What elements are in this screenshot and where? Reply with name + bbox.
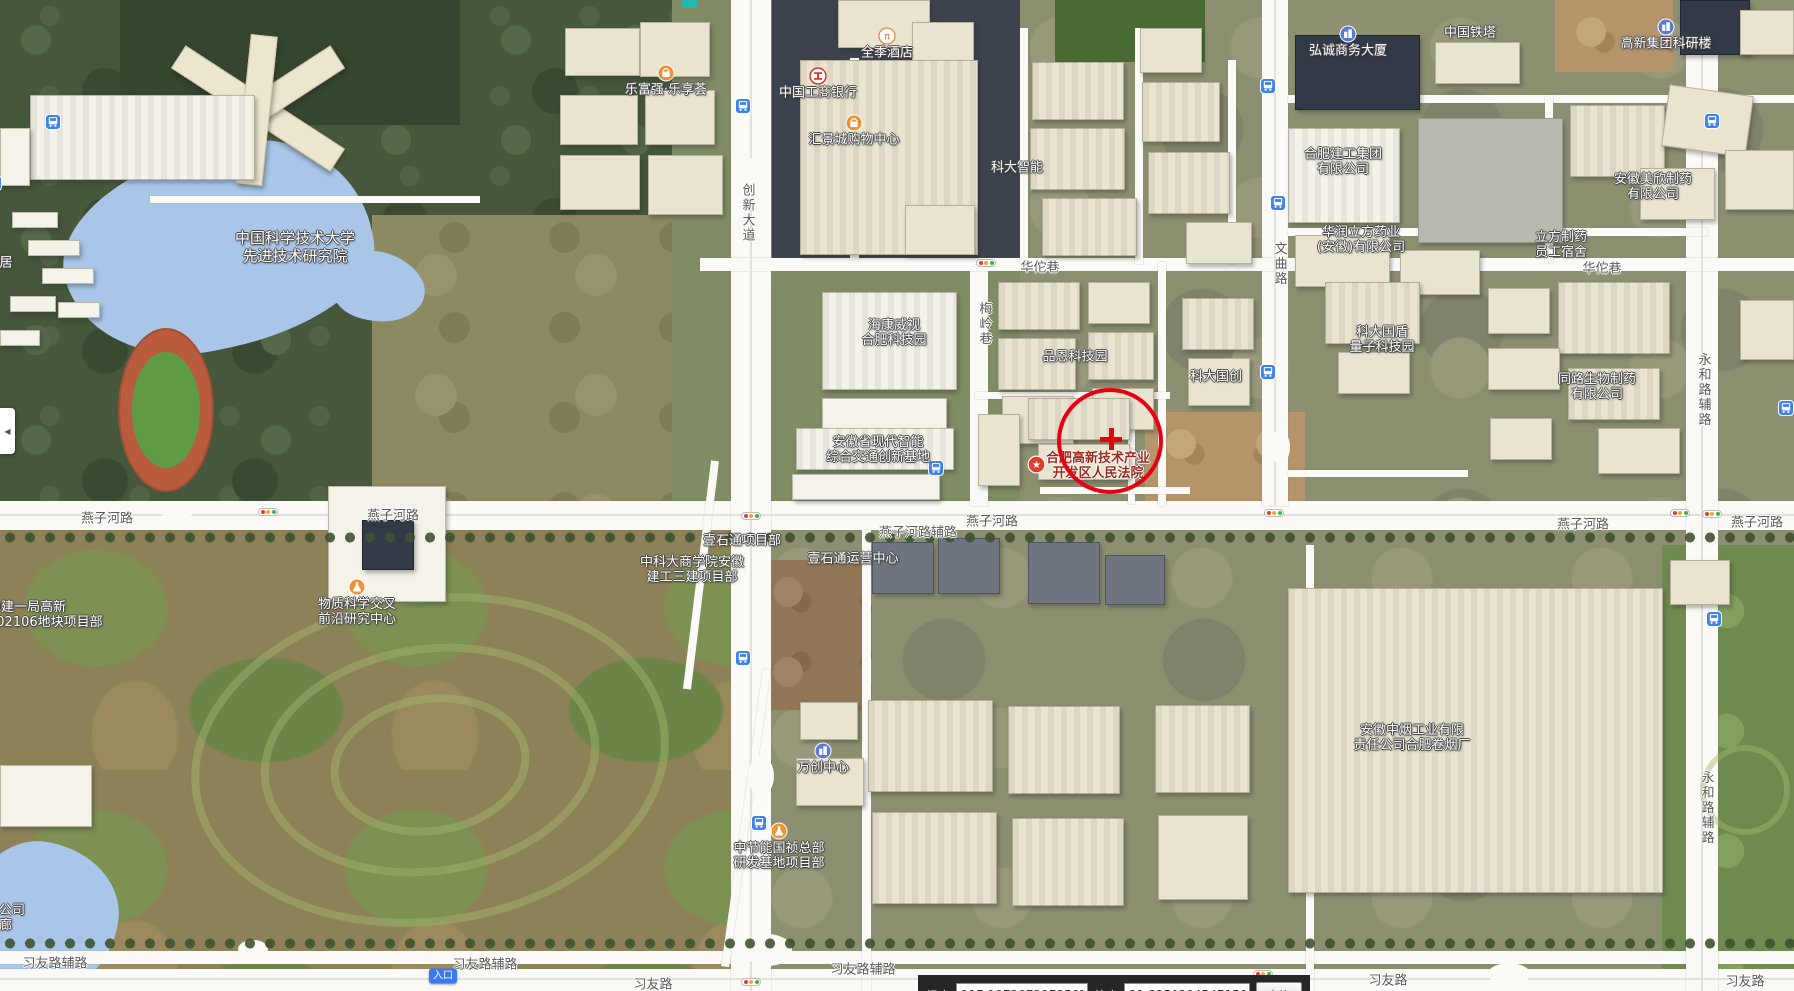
poi-label-line: 弘诚商务大厦 — [1309, 44, 1387, 59]
building — [1418, 118, 1563, 243]
building — [1140, 28, 1202, 73]
poi-label-line: 先进技术研究院 — [235, 247, 355, 265]
road-label: 永和路辅路 — [1697, 771, 1716, 846]
building — [1148, 152, 1230, 214]
poi-label-china-tower[interactable]: 中国铁塔 — [1444, 26, 1496, 41]
science-icon[interactable] — [349, 579, 366, 596]
building — [905, 205, 975, 255]
poi-label-keda-zhineng[interactable]: 科大智能 — [991, 161, 1043, 176]
building — [868, 700, 993, 792]
bus-stop-icon[interactable] — [751, 815, 767, 831]
building — [0, 765, 92, 827]
entrance-badge: 入口 — [429, 969, 457, 984]
poi-label-ustc-business-school-site[interactable]: 中科大商学院安徽建工三建项目部 — [640, 555, 744, 585]
traffic-light-icon — [741, 512, 761, 520]
building — [1008, 706, 1120, 794]
building — [1105, 555, 1165, 605]
building — [1012, 818, 1124, 906]
building — [1488, 288, 1550, 334]
road-label: 习友路 — [1725, 971, 1764, 990]
road-label: 创新大道 — [738, 183, 757, 243]
building — [1186, 222, 1252, 264]
road-segment — [1020, 28, 1028, 264]
bus-stop-icon[interactable] — [0, 175, 2, 191]
bus-stop-icon[interactable] — [1778, 400, 1794, 416]
building — [1558, 282, 1670, 354]
building — [1028, 542, 1100, 604]
poi-label-line: 有限公司 — [1614, 187, 1692, 202]
bus-stop-icon[interactable] — [1260, 78, 1276, 94]
poi-label-line: 高新集团科研楼 — [1620, 37, 1711, 52]
poi-label-yishitong-project[interactable]: 壹石通项目部 — [703, 534, 781, 549]
building — [1182, 298, 1254, 350]
poi-label-lefuqiang-plaza[interactable]: 乐富强·乐享荟 — [625, 83, 707, 98]
bus-stop-icon[interactable] — [1270, 195, 1286, 211]
building — [42, 268, 94, 284]
road-intersection — [748, 756, 774, 796]
poi-label-line: 品恩科技园 — [1042, 350, 1107, 365]
terrain-tan-field — [372, 215, 672, 503]
poi-label-line: 综合交通创新基地 — [826, 450, 930, 465]
building — [1725, 150, 1794, 210]
poi-label-pinen-tech-park[interactable]: 品恩科技园 — [1042, 350, 1107, 365]
building — [58, 302, 100, 318]
building — [800, 702, 858, 740]
poi-label-line: 壹石通项目部 — [703, 534, 781, 549]
poi-label-tobacco-factory[interactable]: 安徽中烟工业有限责任公司合肥卷烟厂 — [1353, 723, 1470, 753]
road-label: 燕子河路 — [367, 505, 419, 524]
building — [1042, 198, 1137, 256]
poi-label-line: (安徽)有限公司 — [1317, 240, 1405, 255]
poi-label-line: 乐富强·乐享荟 — [625, 83, 707, 98]
building — [1030, 128, 1125, 190]
bus-stop-icon[interactable] — [1260, 364, 1276, 380]
road-label: 习友路辅路 — [452, 954, 517, 973]
road-segment — [1158, 262, 1166, 506]
road-segment — [1288, 470, 1468, 477]
building-icon[interactable] — [1658, 18, 1675, 35]
building — [1670, 560, 1730, 605]
poi-label-icbc-bank[interactable]: 中国工商银行 — [779, 86, 857, 101]
road-label: 华佗巷 — [1582, 258, 1621, 277]
poi-label-line: 管廊 — [0, 918, 25, 933]
building — [872, 542, 934, 594]
poi-label-line: 科大国盾 — [1349, 325, 1414, 340]
latitude-input[interactable] — [1124, 983, 1250, 991]
building — [872, 812, 997, 904]
building — [792, 474, 940, 500]
building — [1142, 82, 1220, 142]
latitude-label: 纬度 — [1094, 987, 1118, 991]
poi-label-line: 立方制药 — [1535, 230, 1587, 245]
metro-chip-icon — [682, 0, 697, 8]
poi-label-line: 中建一局高新 — [0, 600, 103, 615]
building — [640, 22, 710, 77]
building — [30, 95, 255, 180]
traffic-light-icon — [1264, 509, 1284, 517]
poi-label-zhongjieneng-hq-site[interactable]: 中节能国祯总部研发基地项目部 — [733, 841, 824, 871]
poi-label-wanchuang-center[interactable]: 万创中心 — [797, 761, 849, 776]
road-label: 习友路辅路 — [830, 959, 895, 978]
building — [1338, 352, 1410, 394]
poi-label-hefei-construction-group[interactable]: 合肥建工集团有限公司 — [1304, 147, 1382, 177]
building — [1155, 705, 1250, 793]
coordinate-statusbar: 经度 纬度 查询 — [918, 975, 1310, 991]
poi-label-line: 建工三建项目部 — [640, 570, 744, 585]
poi-label-line: 中科大商学院安徽 — [640, 555, 744, 570]
bus-stop-icon[interactable] — [735, 650, 751, 666]
road-label: 文曲路 — [1270, 242, 1289, 287]
building — [998, 282, 1080, 330]
science-icon[interactable] — [771, 823, 788, 840]
poi-label-line: 中国工商银行 — [779, 86, 857, 101]
building — [10, 296, 56, 312]
poi-label-matter-science-center[interactable]: 物质科学交叉前沿研究中心 — [318, 597, 396, 627]
shopping-icon[interactable] — [846, 114, 863, 131]
building — [0, 330, 40, 346]
building — [1570, 105, 1665, 177]
sidebar-collapse-button[interactable]: ◀ — [0, 408, 15, 454]
poi-label-line: 中国铁塔 — [1444, 26, 1496, 41]
bank-icon[interactable] — [810, 67, 827, 84]
building — [645, 90, 715, 145]
satellite-map[interactable]: 中国科学技术大学先进技术研究院乐富强·乐享荟中国工商银行全季酒店π汇景城购物中心… — [0, 0, 1794, 991]
building-icon[interactable] — [1340, 25, 1357, 42]
road-intersection — [1488, 963, 1530, 985]
poi-label-line: 合肥建工集团 — [1304, 147, 1382, 162]
poi-label-line: 安徽中烟工业有限 — [1353, 723, 1470, 738]
poi-label-gaoxin-research-building[interactable]: 高新集团科研楼 — [1620, 37, 1711, 52]
poi-label-line: 中节能国祯总部 — [733, 841, 824, 856]
road-label: 永和路辅路 — [1694, 353, 1713, 428]
building — [1598, 428, 1680, 474]
poi-label-keda-guochuang[interactable]: 科大国创 — [1190, 370, 1242, 385]
poi-label-ustc-advanced-institute[interactable]: 中国科学技术大学先进技术研究院 — [235, 229, 355, 265]
svg-text:π: π — [884, 31, 890, 42]
poi-label-huijingcheng-mall[interactable]: 汇景城购物中心 — [808, 133, 899, 148]
road-label: 燕子河路辅路 — [879, 522, 957, 541]
poi-label-line: 全季酒店 — [861, 46, 913, 61]
building — [1488, 348, 1560, 390]
traffic-light-icon — [1702, 510, 1722, 518]
building — [1740, 10, 1794, 55]
building — [912, 22, 974, 64]
court-icon[interactable]: ★ — [1028, 456, 1045, 473]
building — [362, 520, 414, 570]
road-label: 习友路 — [633, 974, 672, 991]
poi-label-line: 海康威视 — [861, 318, 926, 333]
road-label: 华佗巷 — [1020, 257, 1059, 276]
traffic-light-icon — [258, 508, 278, 516]
poi-label-ji-hotel[interactable]: 全季酒店 — [861, 46, 913, 61]
bus-stop-icon[interactable] — [45, 114, 61, 130]
poi-label-line: 科大国创 — [1190, 370, 1242, 385]
poi-label-line: 科大智能 — [991, 161, 1043, 176]
building — [560, 95, 638, 145]
building — [1288, 588, 1663, 893]
poi-label-meixin-pharma[interactable]: 安徽美欣制药有限公司 — [1614, 172, 1692, 202]
poi-label-tonglu-biopharma[interactable]: 同路生物制药有限公司 — [1558, 372, 1636, 402]
target-crosshair — [1109, 428, 1114, 450]
building — [1088, 282, 1150, 324]
poi-label-line: 量子科技园 — [1349, 340, 1414, 355]
poi-label-line: 有限公司 — [1304, 162, 1382, 177]
road-label: 燕子河路 — [81, 508, 133, 527]
road-label: 燕子河路 — [1731, 512, 1783, 531]
poi-label-hongcheng-tower[interactable]: 弘诚商务大厦 — [1309, 44, 1387, 59]
building — [648, 155, 723, 215]
traffic-light-icon — [976, 259, 996, 267]
poi-label-lifang-dormitory[interactable]: 立方制药员工宿舍 — [1535, 230, 1587, 260]
road-label: 习友路辅路 — [22, 953, 87, 972]
hotel-icon[interactable]: π — [879, 27, 896, 44]
poi-label-guodun-quantum-park[interactable]: 科大国盾量子科技园 — [1349, 325, 1414, 355]
building — [12, 212, 58, 228]
poi-label-line: 员工宿舍 — [1535, 245, 1587, 260]
road-label: 习友路 — [1368, 970, 1407, 989]
poi-label-huarun-lifang-pharma[interactable]: 华润立方药业(安徽)有限公司 — [1317, 225, 1405, 255]
poi-label-yishitong-center[interactable]: 壹石通运营中心 — [807, 552, 898, 567]
bus-stop-icon[interactable] — [1706, 611, 1722, 627]
poi-label-hikvision-park[interactable]: 海康威视合肥科技园 — [861, 318, 926, 348]
poi-label-line: 合肥科技园 — [861, 333, 926, 348]
poi-label-zhongjian-site[interactable]: 中建一局高新202106地块项目部 — [0, 600, 103, 630]
poi-label-line: 安徽美欣制药 — [1614, 172, 1692, 187]
poi-label-line: 华润立方药业 — [1317, 225, 1405, 240]
poi-label-pipe-gallery-partial[interactable]: 廊公司管廊 — [0, 903, 25, 933]
poi-label-smart-transport-base[interactable]: 安徽省现代智能综合交通创新基地 — [826, 435, 930, 465]
road-segment — [150, 196, 480, 203]
bus-stop-icon[interactable] — [1704, 113, 1720, 129]
building-icon[interactable] — [815, 742, 832, 759]
poi-label-line: 汇景城购物中心 — [808, 133, 899, 148]
poi-label-line: 责任公司合肥卷烟厂 — [1353, 738, 1470, 753]
building — [978, 414, 1020, 486]
road-label: 梅岭巷 — [975, 302, 994, 347]
road-intersection — [160, 503, 194, 519]
collapse-arrow-icon: ◀ — [4, 427, 10, 436]
building — [1490, 418, 1552, 460]
stadium-field — [132, 352, 200, 468]
building — [560, 155, 640, 210]
svg-text:★: ★ — [1032, 460, 1041, 471]
building — [565, 28, 640, 76]
building — [1740, 300, 1794, 360]
road-segment — [0, 951, 1794, 964]
poi-label-ju-partial[interactable]: 居 — [0, 256, 13, 271]
poi-label-line: 壹石通运营中心 — [807, 552, 898, 567]
poi-label-line: 廊公司 — [0, 903, 25, 918]
bus-stop-icon[interactable] — [928, 460, 944, 476]
poi-label-line: 中国科学技术大学 — [235, 229, 355, 247]
building — [938, 538, 1000, 594]
poi-label-line: 前沿研究中心 — [318, 612, 396, 627]
poi-label-line: 居 — [0, 256, 13, 271]
poi-label-line: 万创中心 — [797, 761, 849, 776]
poi-label-line: 研发基地项目部 — [733, 856, 824, 871]
building — [1435, 42, 1520, 84]
treeline-xiyou — [0, 936, 1794, 951]
poi-label-line: 202106地块项目部 — [0, 615, 103, 630]
bus-stop-icon[interactable] — [735, 98, 751, 114]
traffic-light-icon — [741, 978, 761, 986]
poi-label-line: 安徽省现代智能 — [826, 435, 930, 450]
road-label: 燕子河路 — [966, 511, 1018, 530]
building — [28, 240, 80, 256]
longitude-label: 经度 — [926, 987, 950, 991]
building — [0, 128, 30, 186]
poi-label-line: 同路生物制药 — [1558, 372, 1636, 387]
longitude-input[interactable] — [956, 983, 1088, 991]
poi-label-line: 有限公司 — [1558, 387, 1636, 402]
shopping-icon[interactable] — [658, 64, 675, 81]
building — [1032, 62, 1124, 120]
traffic-light-icon — [1670, 509, 1690, 517]
poi-label-line: 物质科学交叉 — [318, 597, 396, 612]
query-button[interactable]: 查询 — [1256, 982, 1302, 991]
road-label: 燕子河路 — [1557, 514, 1609, 533]
building — [1158, 815, 1248, 900]
road-intersection — [1270, 430, 1290, 464]
